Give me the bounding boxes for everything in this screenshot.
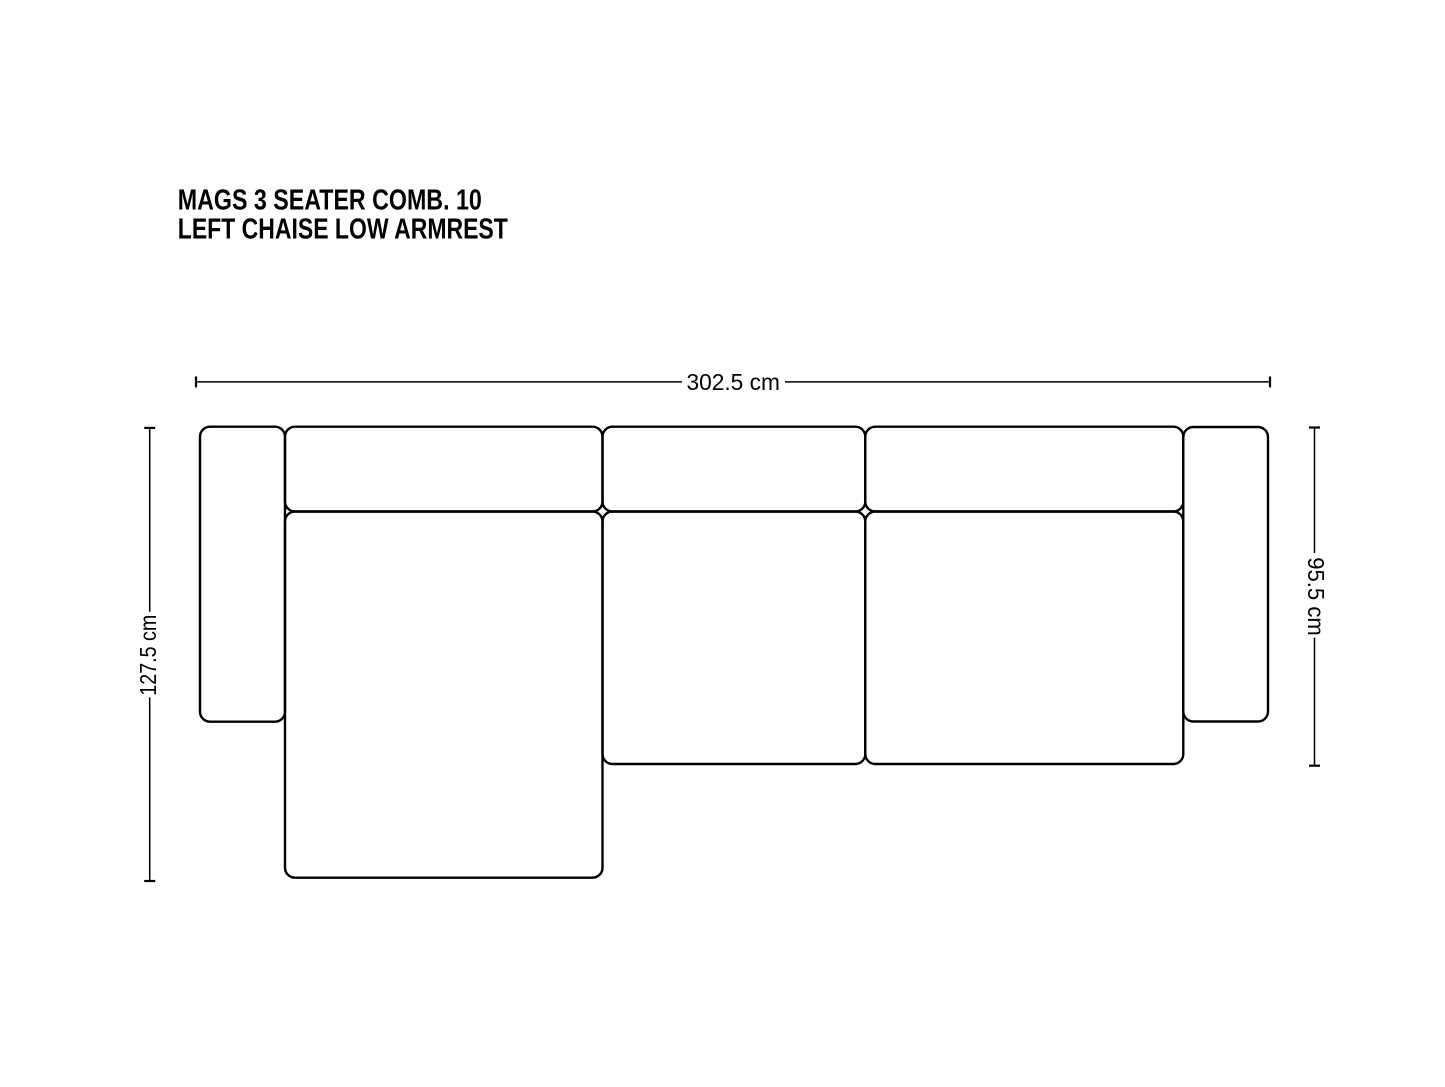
svg-text:MAGS 3 SEATER COMB. 10: MAGS 3 SEATER COMB. 10 xyxy=(178,184,482,216)
svg-text:302.5 cm: 302.5 cm xyxy=(686,369,780,395)
svg-text:LEFT CHAISE LOW ARMREST: LEFT CHAISE LOW ARMREST xyxy=(178,213,509,245)
svg-text:127.5 cm: 127.5 cm xyxy=(135,615,161,696)
svg-text:95.5 cm: 95.5 cm xyxy=(1303,557,1329,636)
